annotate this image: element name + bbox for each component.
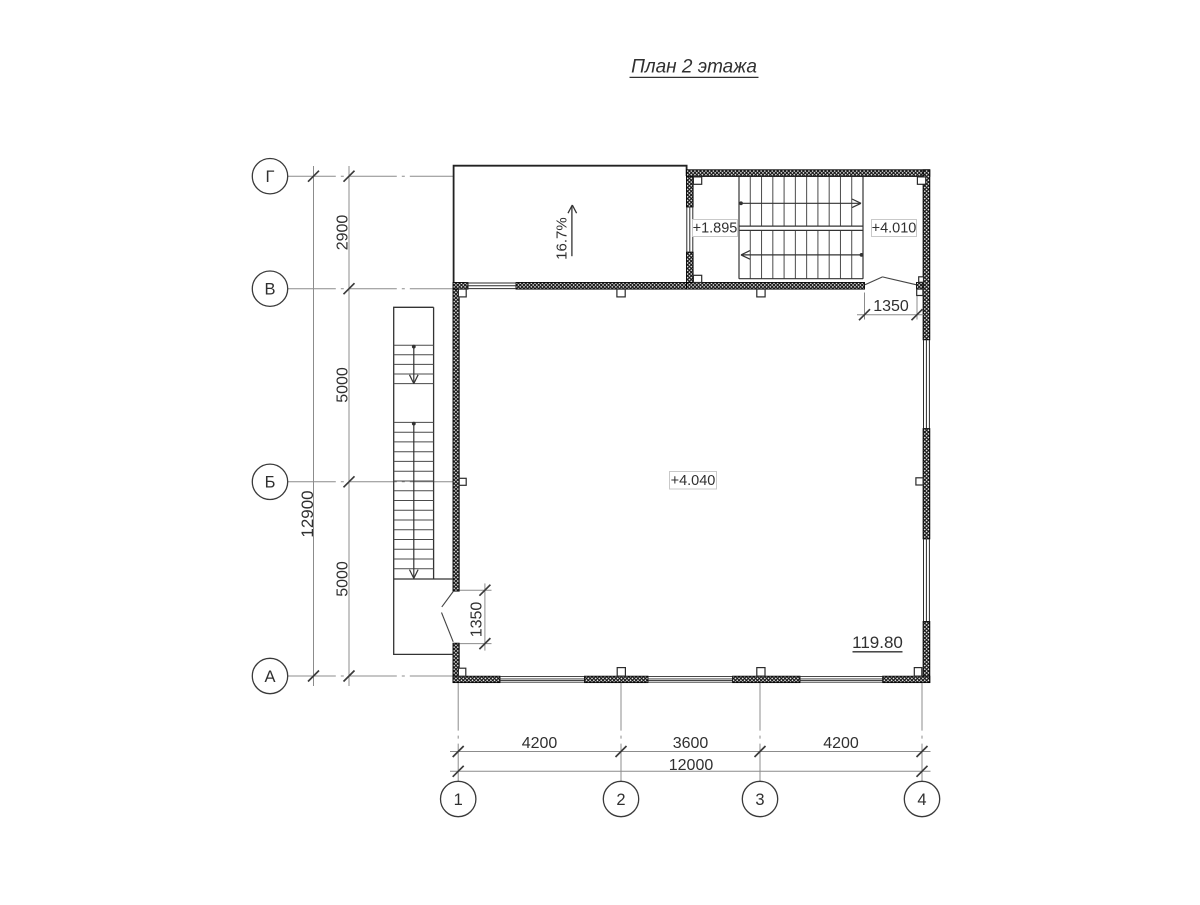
- svg-text:1: 1: [454, 791, 463, 809]
- svg-text:119.80: 119.80: [852, 633, 903, 652]
- svg-text:1350: 1350: [873, 298, 909, 315]
- svg-text:2900: 2900: [335, 215, 352, 251]
- svg-text:+4.010: +4.010: [872, 220, 917, 236]
- svg-text:2: 2: [616, 791, 625, 809]
- svg-text:4200: 4200: [522, 735, 558, 752]
- svg-text:4: 4: [917, 791, 926, 809]
- svg-text:4200: 4200: [823, 735, 859, 752]
- svg-text:Г: Г: [266, 168, 275, 186]
- svg-text:В: В: [264, 281, 275, 299]
- svg-text:Б: Б: [265, 474, 276, 492]
- svg-text:16.7%: 16.7%: [554, 217, 571, 260]
- svg-text:А: А: [264, 668, 275, 686]
- svg-text:5000: 5000: [335, 561, 352, 597]
- svg-text:3600: 3600: [673, 735, 709, 752]
- svg-text:1350: 1350: [468, 602, 485, 638]
- svg-text:12900: 12900: [298, 490, 317, 537]
- svg-text:План 2 этажа: План 2 этажа: [631, 57, 757, 78]
- svg-text:+1.895: +1.895: [693, 220, 738, 236]
- svg-text:+4.040: +4.040: [671, 473, 716, 489]
- svg-text:12000: 12000: [669, 757, 714, 774]
- svg-text:3: 3: [755, 791, 764, 809]
- svg-text:5000: 5000: [335, 367, 352, 403]
